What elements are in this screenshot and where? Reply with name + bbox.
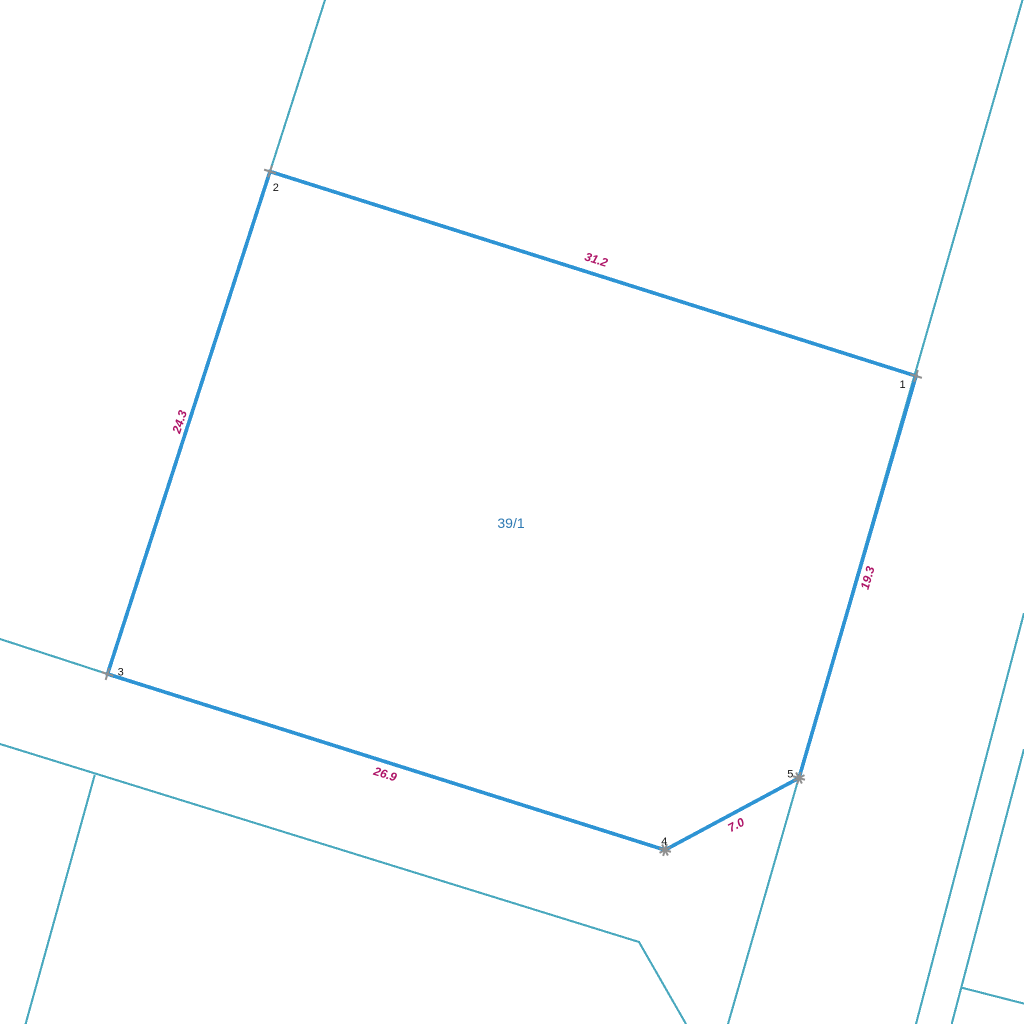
- svg-text:5: 5: [787, 769, 793, 781]
- svg-text:3: 3: [118, 666, 124, 678]
- svg-text:1: 1: [900, 379, 906, 391]
- svg-text:39/1: 39/1: [497, 515, 524, 531]
- svg-text:2: 2: [273, 182, 279, 194]
- svg-text:4: 4: [661, 836, 667, 848]
